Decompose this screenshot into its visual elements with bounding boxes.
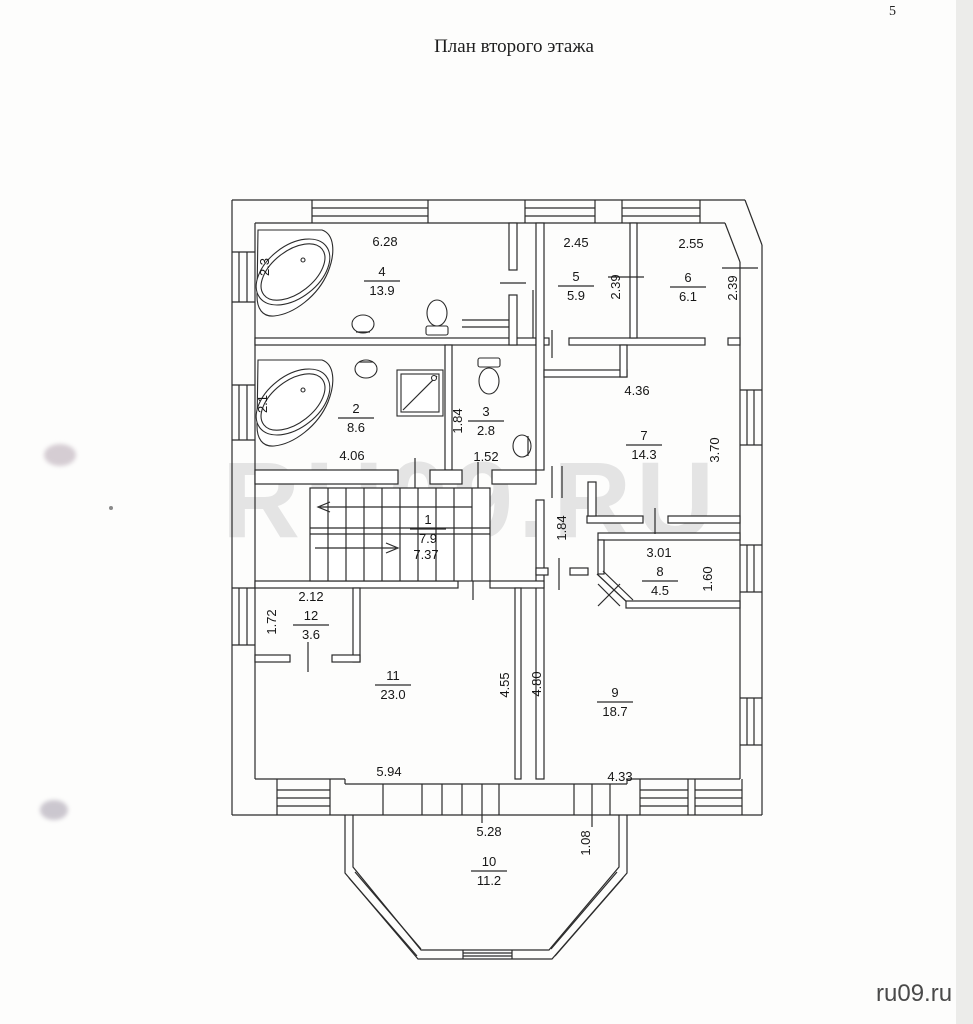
site-credit: ru09.ru [876,980,952,1008]
dim-4-06: 4.06 [339,448,364,463]
dim-1-84-wc: 1.84 [450,408,465,433]
dim-2-12: 2.12 [298,589,323,604]
room-7-area: 14.3 [631,447,656,462]
dim-1-08: 1.08 [578,830,593,855]
room-11-area: 23.0 [380,687,405,702]
dim-2-1-tub: 2.1 [255,395,270,413]
room-8-area: 4.5 [651,583,669,598]
room-2-area: 8.6 [347,420,365,435]
room-10-area: 11.2 [477,873,501,888]
dim-4-33: 4.33 [607,769,632,784]
dim-4-55: 4.55 [497,672,512,697]
room-6-area: 6.1 [679,289,697,304]
scan-edge-strip [956,0,973,1024]
scan-dot-artifact [109,506,113,510]
room-11-number: 11 [386,668,400,683]
dim-4-36: 4.36 [624,383,649,398]
room-2-number: 2 [352,401,359,416]
dim-2-39-left: 2.39 [608,274,623,299]
sink-room2 [355,360,377,378]
dim-1-52: 1.52 [473,449,498,464]
room-1-area: 7.9 [419,531,437,546]
room-9-number: 9 [611,685,618,700]
room-3-number: 3 [482,404,489,419]
room-5-area: 5.9 [567,288,585,303]
dim-3-01: 3.01 [646,545,671,560]
room-5-number: 5 [572,269,579,284]
room-6-number: 6 [684,270,691,285]
dim-5-28: 5.28 [476,824,501,839]
dim-4-80: 4.80 [529,671,544,696]
dim-3-70: 3.70 [707,437,722,462]
dim-2-3-tub: 2.3 [257,258,272,276]
scan-smudge-artifact [44,444,76,466]
staircase [310,488,490,581]
dim-2-39-right: 2.39 [725,275,740,300]
scanned-floorplan-page: 5 План второго этажа RU09.RU [0,0,973,1024]
floor-plan-drawing: 4 13.9 5 5.9 6 6.1 2 8.6 3 2.8 7 14.3 1 … [0,0,973,1024]
scan-smudge-artifact [40,800,68,820]
room-10-number: 10 [482,854,496,869]
dim-5-94: 5.94 [376,764,401,779]
dim-1-60: 1.60 [700,566,715,591]
sink-room3 [513,435,531,457]
dim-2-55: 2.55 [678,236,703,251]
dim-7-37: 7.37 [413,547,438,562]
room-1-number: 1 [424,512,431,527]
dim-1-84-hall: 1.84 [554,515,569,540]
dim-6-28: 6.28 [372,234,397,249]
toilet-room4 [426,300,448,335]
toilet-room3 [478,358,500,394]
room-7-number: 7 [640,428,647,443]
room-8-number: 8 [656,564,663,579]
shower-room2 [397,370,443,416]
room-12-number: 12 [304,608,318,623]
dim-1-72: 1.72 [264,609,279,634]
room-4-area: 13.9 [369,283,394,298]
room-3-area: 2.8 [477,423,495,438]
dim-2-45: 2.45 [563,235,588,250]
sink-room4 [352,315,374,333]
room-4-number: 4 [378,264,385,279]
room-9-area: 18.7 [602,704,627,719]
room-12-area: 3.6 [302,627,320,642]
